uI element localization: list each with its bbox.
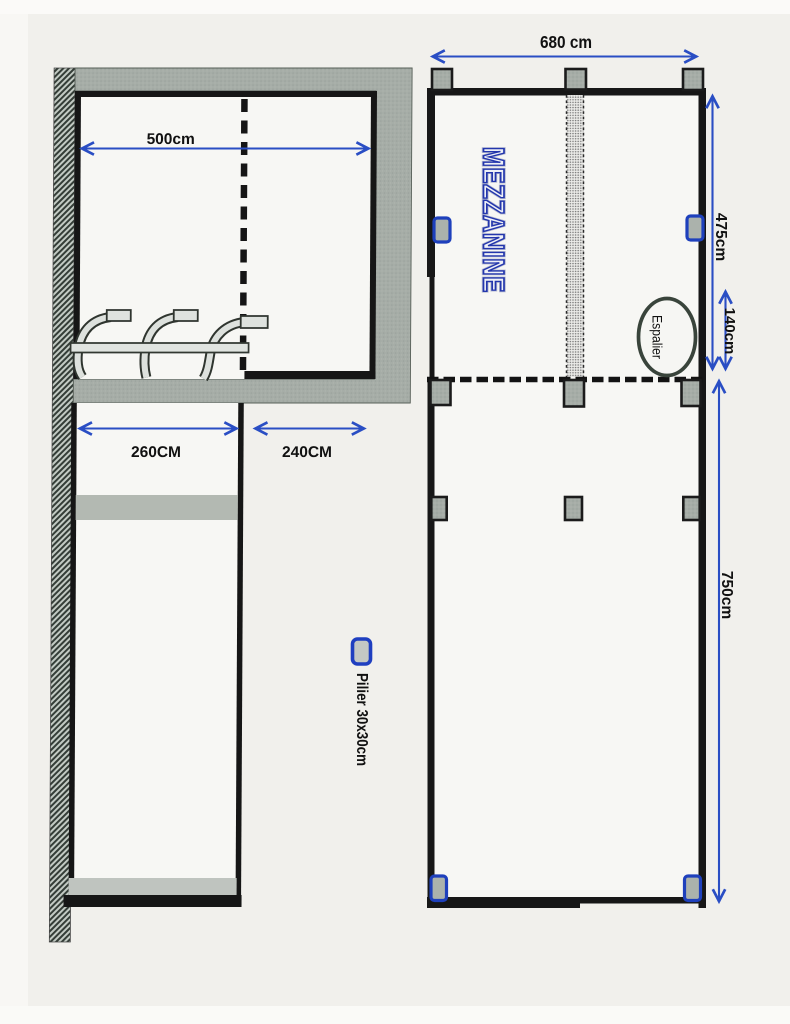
svg-text:750cm: 750cm <box>718 571 735 619</box>
svg-text:Espalier: Espalier <box>650 315 665 359</box>
svg-text:680 cm: 680 cm <box>540 32 592 52</box>
svg-text:475cm: 475cm <box>712 213 729 261</box>
svg-text:260CM: 260CM <box>131 444 181 461</box>
svg-text:Pilier 30x30cm: Pilier 30x30cm <box>353 673 370 766</box>
svg-text:140cm: 140cm <box>721 308 738 355</box>
svg-text:MEZZANINE: MEZZANINE <box>477 147 510 293</box>
svg-text:240CM: 240CM <box>282 444 332 461</box>
svg-text:500cm: 500cm <box>147 131 195 148</box>
